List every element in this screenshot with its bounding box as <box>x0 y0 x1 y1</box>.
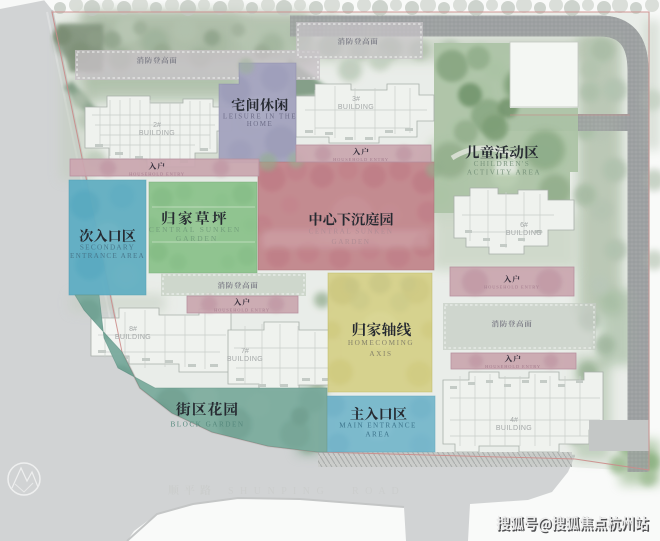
svg-text:3#: 3# <box>352 96 360 103</box>
svg-text:MAIN ENTRANCE: MAIN ENTRANCE <box>339 421 417 429</box>
svg-text:HOUSEHOLD ENTRY: HOUSEHOLD ENTRY <box>333 157 389 162</box>
svg-text:HOMECOMING: HOMECOMING <box>348 339 414 347</box>
svg-text:CENTRAL SUNKEN: CENTRAL SUNKEN <box>149 225 241 234</box>
svg-text:2#: 2# <box>153 122 161 129</box>
svg-text:GARDEN: GARDEN <box>176 234 218 243</box>
svg-text:HOUSEHOLD ENTRY: HOUSEHOLD ENTRY <box>484 285 540 290</box>
svg-text:CENTRAL SUNKEN: CENTRAL SUNKEN <box>309 228 394 236</box>
svg-text:8#: 8# <box>129 326 137 333</box>
svg-text:BLOCK GARDEN: BLOCK GARDEN <box>170 421 244 429</box>
svg-text:BUILDING: BUILDING <box>115 334 151 341</box>
svg-text:ENTRANCE AREA: ENTRANCE AREA <box>70 252 145 260</box>
svg-text:SECONDARY: SECONDARY <box>80 243 135 251</box>
svg-text:HOME: HOME <box>247 120 274 128</box>
svg-text:HOUSEHOLD ENTRY: HOUSEHOLD ENTRY <box>214 308 270 313</box>
svg-text:BUILDING: BUILDING <box>139 130 175 137</box>
svg-text:AXIS: AXIS <box>369 350 392 358</box>
svg-text:CHILDREN'S: CHILDREN'S <box>474 160 531 168</box>
svg-text:BUILDING: BUILDING <box>227 356 263 363</box>
svg-text:BUILDING: BUILDING <box>496 425 532 432</box>
svg-text:BUILDING: BUILDING <box>338 104 374 111</box>
svg-text:R O A D: R O A D <box>352 486 401 497</box>
svg-text:AREA: AREA <box>365 430 390 438</box>
svg-text:S H U N P I N G: S H U N P I N G <box>228 486 326 497</box>
svg-text:ACTIVITY AREA: ACTIVITY AREA <box>467 169 541 177</box>
svg-text:7#: 7# <box>241 348 249 355</box>
svg-text:GARDEN: GARDEN <box>332 238 371 246</box>
svg-text:4#: 4# <box>510 417 518 424</box>
svg-text:HOUSEHOLD ENTRY: HOUSEHOLD ENTRY <box>485 364 541 369</box>
svg-text:BUILDING: BUILDING <box>506 230 542 237</box>
svg-text:HOUSEHOLD ENTRY: HOUSEHOLD ENTRY <box>129 172 185 177</box>
svg-text:6#: 6# <box>520 222 528 229</box>
